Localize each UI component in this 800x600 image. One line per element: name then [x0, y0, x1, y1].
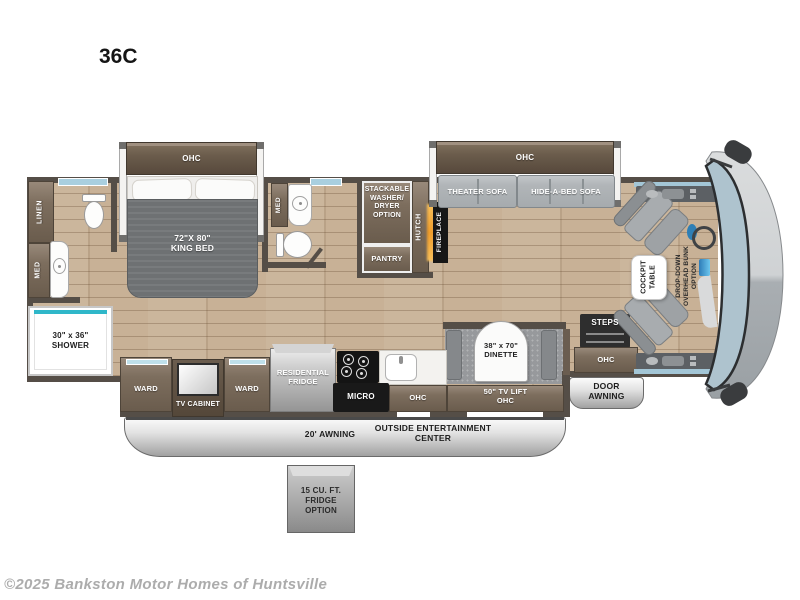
burner-4 — [356, 368, 367, 379]
ward-left-glass — [126, 359, 168, 365]
king-bed-label: 72"X 80" KING BED — [127, 233, 258, 254]
sink-mid — [292, 196, 308, 211]
theater-sofa-label: THEATER SOFA — [438, 187, 517, 196]
ward-left-label: WARD — [120, 384, 172, 393]
step-line-1 — [586, 333, 624, 335]
awning-rail — [126, 417, 564, 420]
bath1-window — [58, 178, 108, 186]
wall-bath2-bottom — [262, 262, 326, 268]
burner-2 — [358, 356, 369, 367]
cockpit-table-label: COCKPIT TABLE — [640, 260, 658, 294]
sink-front — [53, 258, 66, 274]
pantry-label: PANTRY — [362, 254, 412, 263]
washer-dryer-label: STACKABLE WASHER/ DRYER OPTION — [362, 186, 412, 220]
front-cap — [640, 135, 800, 420]
dinette-bench-left — [446, 330, 462, 380]
burner-1 — [343, 354, 354, 365]
window-gap-2 — [397, 412, 430, 417]
fridge-top-lid — [272, 344, 334, 353]
tv-cabinet-label: TV CABINET — [168, 401, 228, 410]
linen-label: LINEN — [37, 200, 46, 224]
ward-right-label: WARD — [224, 384, 270, 393]
faucet — [399, 356, 403, 364]
step-line-2 — [586, 341, 624, 343]
watermark: ©2025 Bankston Motor Homes of Huntsville — [4, 576, 327, 593]
floorplan-page: 36C ©2025 Bankston Motor Homes of Huntsv… — [0, 0, 800, 600]
toilet-front-bowl — [84, 201, 104, 229]
fireplace-label: FIREPLACE — [436, 212, 444, 252]
microwave-label: MICRO — [333, 392, 389, 402]
wall-bottom-left — [27, 376, 126, 382]
toilet-mid-bowl — [283, 231, 312, 258]
wall-bath1-right — [111, 183, 117, 252]
wall-entry — [563, 329, 570, 375]
hide-a-bed-sofa-label: HIDE-A-BED SOFA — [517, 187, 615, 196]
entry-ohc-label: OHC — [574, 355, 638, 364]
fridge-option-label: 15 CU. FT. FRIDGE OPTION — [291, 486, 351, 515]
bunk-option-label: DROP-DOWN OVERHEAD BUNK OPTION — [675, 246, 699, 306]
hutch-label: HUTCH — [416, 213, 425, 241]
door-awning-label: DOOR AWNING — [574, 381, 639, 402]
page-title: 36C — [99, 45, 138, 69]
fridge-label: RESIDENTIAL FRIDGE — [270, 368, 336, 386]
med-front-label: MED — [35, 261, 44, 278]
kitchen-ohc-label: OHC — [389, 393, 447, 402]
burner-3 — [341, 366, 352, 377]
ward-right-glass — [229, 359, 266, 365]
shower-glass-strip — [34, 310, 107, 314]
tv-lift-label: 50" TV LIFT OHC — [447, 387, 564, 405]
bath2-window — [310, 178, 342, 186]
bedroom-ohc-label: OHC — [126, 154, 257, 164]
fridge-option-lid — [289, 466, 353, 476]
steps-label: STEPS — [580, 318, 630, 328]
med-mid-label: MED — [275, 197, 283, 213]
dinette-bench-right — [541, 330, 557, 380]
dinette-label: 38" x 70" DINETTE — [470, 341, 532, 359]
window-gap-3 — [467, 412, 543, 417]
living-ohc-label: OHC — [436, 153, 614, 163]
tv-screen — [177, 363, 219, 396]
shower-label: 30" x 36" SHOWER — [30, 331, 111, 351]
entertainment-center-label: OUTSIDE ENTERTAINMENT CENTER — [362, 423, 504, 444]
